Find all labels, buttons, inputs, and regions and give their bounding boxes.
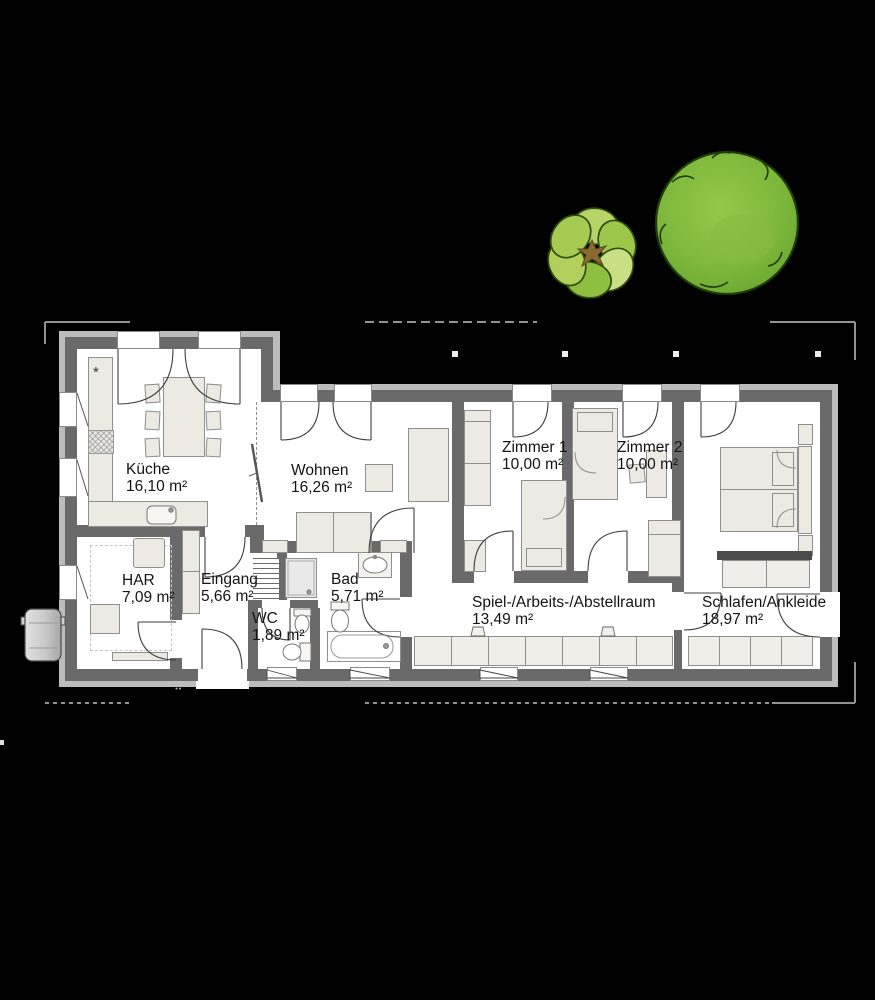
dining-chair: [206, 411, 222, 431]
open-partition-dashed: [256, 402, 257, 525]
kitchen-cooktop: [88, 430, 114, 454]
wardrobe-zimmer2: [648, 520, 681, 577]
pillow-zimmer2: [577, 412, 613, 432]
opening-front-door: [198, 667, 247, 681]
room-label-spielraum: Spiel-/Arbeits-/Abstellraum13,49 m²: [472, 594, 655, 628]
dresser: [722, 560, 810, 588]
terrace-post: [673, 351, 679, 357]
dining-chair: [144, 383, 160, 403]
pillow-zimmer1: [526, 548, 562, 567]
window-flur-south-1: [480, 667, 518, 681]
door-schlafen-terrace: [700, 384, 740, 402]
door-wohnen-terrace-right: [334, 384, 372, 402]
wardrobe-eingang: [182, 530, 200, 614]
dining-chair: [145, 438, 161, 458]
armchair: [408, 428, 449, 502]
sofa: [296, 512, 372, 553]
room-label-zimmer1: Zimmer 110,00 m²: [502, 439, 567, 473]
washing-machine: [133, 538, 165, 568]
dining-chair: [206, 438, 222, 458]
wardrobe-row-flur: [414, 636, 673, 666]
pillow-bed-1: [772, 452, 794, 486]
room-label-wohnen: Wohnen16,26 m²: [291, 462, 352, 496]
window-bad-south: [350, 667, 390, 681]
headboard: [798, 446, 812, 534]
dining-chair: [145, 411, 161, 431]
shower: [285, 558, 317, 598]
har-appliance: [90, 604, 120, 634]
opening-kueche-eingang: [205, 525, 245, 537]
tree-small-icon: [542, 205, 643, 301]
window-har-west: [59, 565, 77, 600]
dining-chair: [205, 383, 221, 403]
wall-wohnen-zimmer1: [452, 402, 464, 583]
terrace-post: [815, 351, 821, 357]
edge-mark: [0, 740, 4, 745]
window-kueche-west-1: [59, 392, 77, 427]
bathtub: [327, 631, 401, 662]
opening-bad-door: [400, 597, 412, 637]
cabinet-zimmer1: [464, 540, 486, 572]
room-label-zimmer2: Zimmer 210,00 m²: [617, 439, 682, 473]
pillow-bed-2: [772, 493, 794, 527]
har-bench: [112, 652, 168, 661]
kitchen-counter-bottom: [88, 501, 208, 527]
wardrobe-row-schlafen: [688, 636, 813, 666]
room-label-eingang: Eingang5,66 m²: [201, 571, 258, 605]
window-kueche-terrace-left: [117, 331, 160, 349]
dresser-top: [717, 551, 812, 560]
wall-wc-bad: [310, 608, 320, 669]
wall-schlafen-stub: [674, 630, 682, 669]
floorplan-canvas: Küche16,10 m² Wohnen16,26 m² Zimmer 110,…: [0, 0, 875, 1000]
coffee-table: [365, 464, 393, 492]
opening-wohnen-flur: [412, 541, 452, 553]
dining-table: [163, 377, 205, 457]
room-label-har: HAR7,09 m²: [122, 572, 175, 606]
tree-large-icon: [656, 152, 798, 294]
terrace-post: [562, 351, 568, 357]
door-zimmer2-terrace: [622, 384, 662, 402]
side-table-left: [262, 540, 288, 553]
opening-wc-door: [262, 600, 290, 608]
window-kueche-terrace-right: [198, 331, 241, 349]
nightstand-top: [798, 424, 813, 445]
kitchen-star-symbol: *: [93, 364, 99, 381]
room-label-bad: Bad5,71 m²: [331, 571, 384, 605]
door-zimmer1-terrace: [512, 384, 552, 402]
room-label-kueche: Küche16,10 m²: [126, 461, 187, 495]
room-label-wc: WC1,89 m²: [252, 610, 305, 644]
window-wc-south: [267, 667, 297, 681]
room-label-schlafen: Schlafen/Ankleide18,97 m²: [702, 594, 826, 628]
terrace-post: [452, 351, 458, 357]
dimension-dots: [176, 688, 182, 690]
opening-zimmer1-door: [474, 571, 514, 583]
door-wohnen-terrace-left: [280, 384, 318, 402]
front-door-threshold: [196, 681, 249, 689]
opening-zimmer2-door: [588, 571, 628, 583]
window-kueche-west-2: [59, 458, 77, 497]
wardrobe-zimmer1: [464, 410, 491, 506]
window-flur-south-2: [590, 667, 628, 681]
